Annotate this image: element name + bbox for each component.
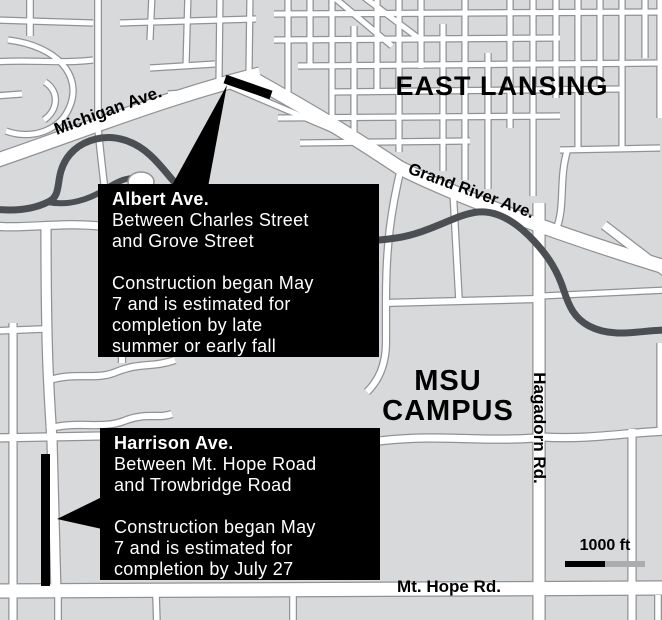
street — [560, 148, 660, 150]
street — [0, 588, 662, 591]
albert-detail-line4: summer or early fall — [112, 336, 379, 357]
street — [0, 20, 93, 23]
scale-bar — [565, 561, 645, 567]
albert-detail-line3: completion by late — [112, 315, 379, 336]
street — [156, 595, 157, 620]
hagadorn-rd-label: Hagadorn Rd. — [529, 358, 549, 498]
msu-campus-line2: CAMPUS — [338, 396, 558, 426]
street — [379, 438, 536, 441]
harrison-location-line1: Between Mt. Hope Road — [114, 454, 380, 475]
scale-bar-black-segment — [565, 561, 605, 567]
msu-campus-label: MSU CAMPUS — [338, 366, 558, 426]
albert-detail-line1: Construction began May — [112, 273, 379, 294]
harrison-location-line2: and Trowbridge Road — [114, 475, 380, 496]
street — [186, 0, 188, 66]
mt-hope-rd-label: Mt. Hope Rd. — [383, 577, 515, 597]
albert-callout-title: Albert Ave. — [112, 189, 379, 210]
spacer — [114, 496, 380, 517]
msu-campus-line1: MSU — [338, 366, 558, 396]
spacer — [112, 252, 379, 273]
street — [278, 116, 560, 118]
harrison-callout-title: Harrison Ave. — [114, 433, 380, 454]
street — [0, 329, 43, 331]
east-lansing-label: EAST LANSING — [384, 71, 620, 102]
albert-location-line1: Between Charles Street — [112, 210, 379, 231]
street — [274, 12, 662, 14]
scale-label: 1000 ft — [565, 536, 645, 556]
harrison-detail-line2: 7 and is estimated for — [114, 538, 380, 559]
harrison-detail-line3: completion by July 27 — [114, 559, 380, 580]
harrison-ave-callout: Harrison Ave. Between Mt. Hope Road and … — [100, 428, 380, 580]
street — [383, 299, 537, 303]
scale-bar-gray-segment — [605, 561, 645, 567]
street — [300, 141, 470, 143]
street — [298, 63, 662, 66]
street — [0, 60, 93, 62]
scale-indicator: 1000 ft — [565, 536, 645, 556]
street — [0, 225, 100, 227]
street — [249, 0, 250, 71]
street — [0, 94, 22, 96]
harrison-detail-line1: Construction began May — [114, 517, 380, 538]
albert-location-line2: and Grove Street — [112, 231, 379, 252]
albert-detail-line2: 7 and is estimated for — [112, 294, 379, 315]
albert-ave-callout: Albert Ave. Between Charles Street and G… — [98, 184, 379, 357]
construction-map: EAST LANSING MSU CAMPUS Michigan Ave. Gr… — [0, 0, 662, 620]
street — [219, 0, 220, 80]
